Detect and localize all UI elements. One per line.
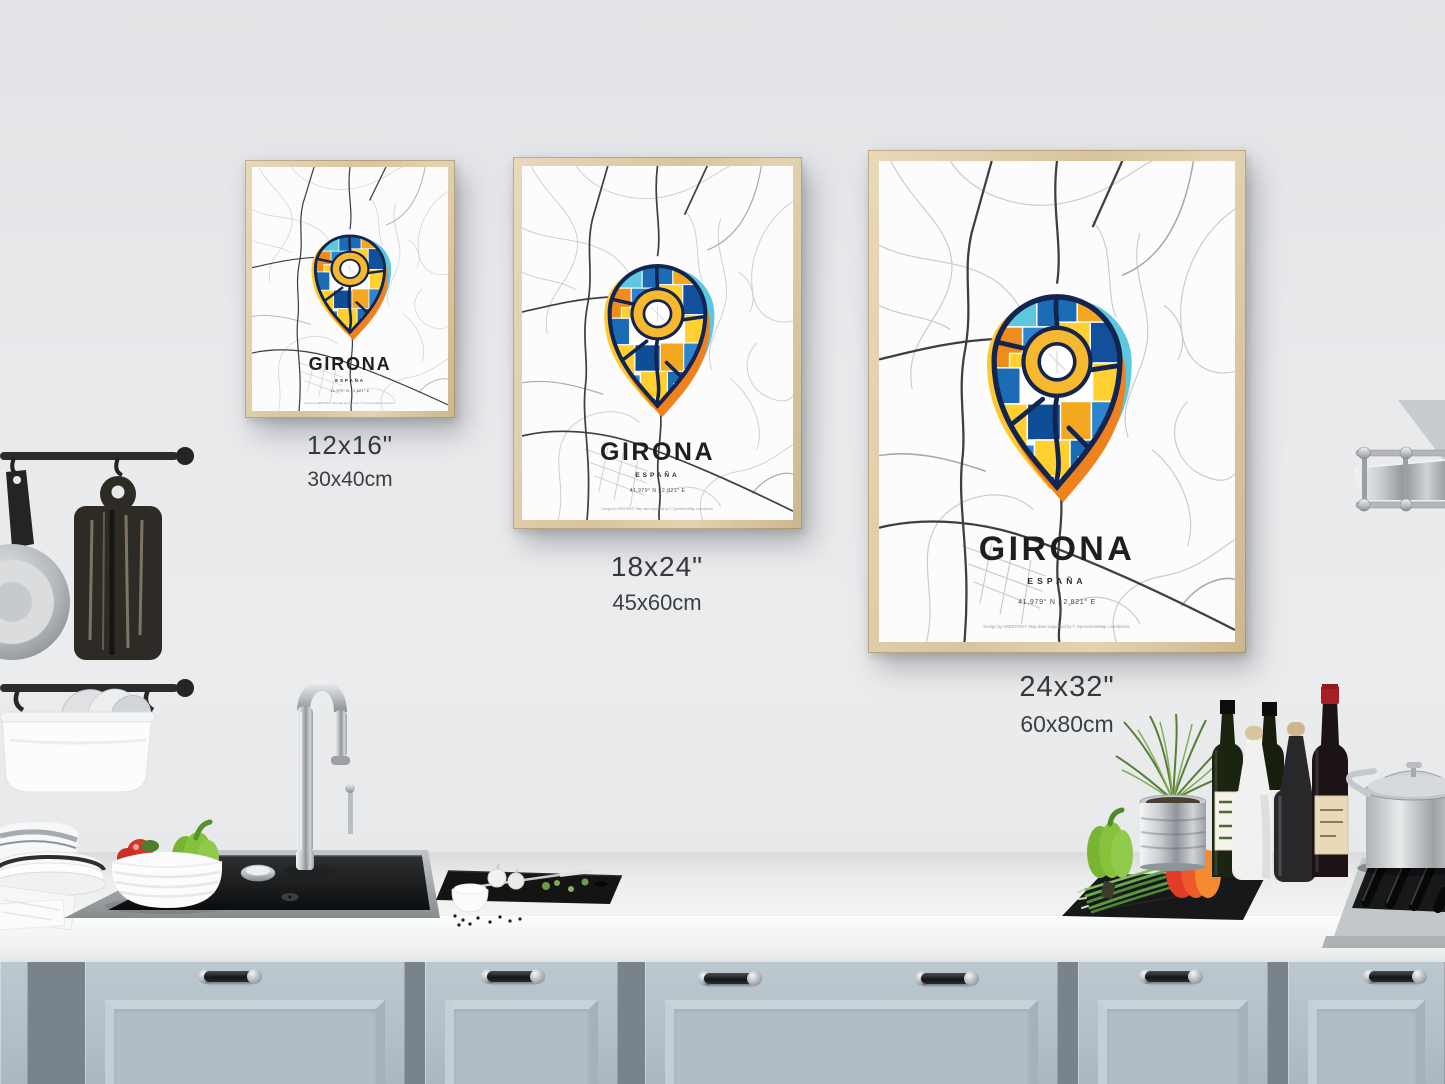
size-cm: 45x60cm — [567, 590, 747, 616]
poster-title: GIRONA — [879, 530, 1235, 569]
size-cm: 30x40cm — [262, 468, 438, 492]
poster-attribution: Design by HEBSTREIT. Map data supported … — [522, 507, 793, 511]
hanging-utensil-basket — [0, 682, 157, 792]
poster-title: GIRONA — [522, 438, 793, 467]
pepper-grinder-black — [1274, 722, 1316, 882]
green-pepper — [1087, 810, 1133, 878]
poster-medium-map: GIRONA ESPAÑA 41,979° N | 2,821° E Desig… — [522, 166, 793, 520]
stainless-wall-shelf — [1354, 400, 1445, 511]
garlic-prep-board — [436, 864, 622, 927]
wall-rail-top — [0, 447, 194, 475]
size-inches: 18x24" — [567, 551, 747, 583]
size-inches: 12x16" — [262, 430, 438, 461]
size-label-medium: 18x24" 45x60cm — [567, 551, 747, 616]
faucet — [284, 681, 355, 877]
size-label-large: 24x32" 60x80cm — [975, 671, 1159, 738]
poster-attribution: Design by HEBSTREIT. Map data supported … — [252, 402, 448, 405]
poster-country: ESPAÑA — [252, 378, 448, 383]
soap-dish — [241, 865, 275, 881]
poster-small-frame: GIRONA ESPAÑA 41,979° N | 2,821° E Desig… — [245, 160, 455, 418]
size-cm: 60x80cm — [975, 711, 1159, 738]
map-artwork — [522, 166, 793, 520]
kitchen-mockup-scene: GIRONA ESPAÑA 41,979° N | 2,821° E Desig… — [0, 0, 1445, 1084]
poster-coordinates: 41,979° N | 2,821° E — [252, 389, 448, 393]
map-artwork — [879, 161, 1235, 642]
hanging-cutting-board — [74, 476, 162, 660]
poster-title: GIRONA — [252, 354, 448, 375]
poster-small-map: GIRONA ESPAÑA 41,979° N | 2,821° E Desig… — [252, 167, 448, 411]
poster-coordinates: 41,979° N | 2,821° E — [879, 599, 1235, 606]
poster-country: ESPAÑA — [522, 472, 793, 479]
poster-attribution: Design by HEBSTREIT. Map data supported … — [879, 624, 1235, 629]
poster-coordinates: 41,979° N | 2,821° E — [522, 488, 793, 494]
hanging-frying-pan — [0, 470, 70, 660]
poster-large-frame: GIRONA ESPAÑA 41,979° N | 2,821° E Desig… — [868, 150, 1246, 653]
plate-stack — [0, 822, 106, 896]
poster-large-map: GIRONA ESPAÑA 41,979° N | 2,821° E Desig… — [879, 161, 1235, 642]
wine-bottle — [1312, 684, 1348, 877]
poster-medium-frame: GIRONA ESPAÑA 41,979° N | 2,821° E Desig… — [513, 157, 802, 529]
size-inches: 24x32" — [975, 671, 1159, 704]
poster-country: ESPAÑA — [879, 576, 1235, 586]
size-label-small: 12x16" 30x40cm — [262, 430, 438, 492]
